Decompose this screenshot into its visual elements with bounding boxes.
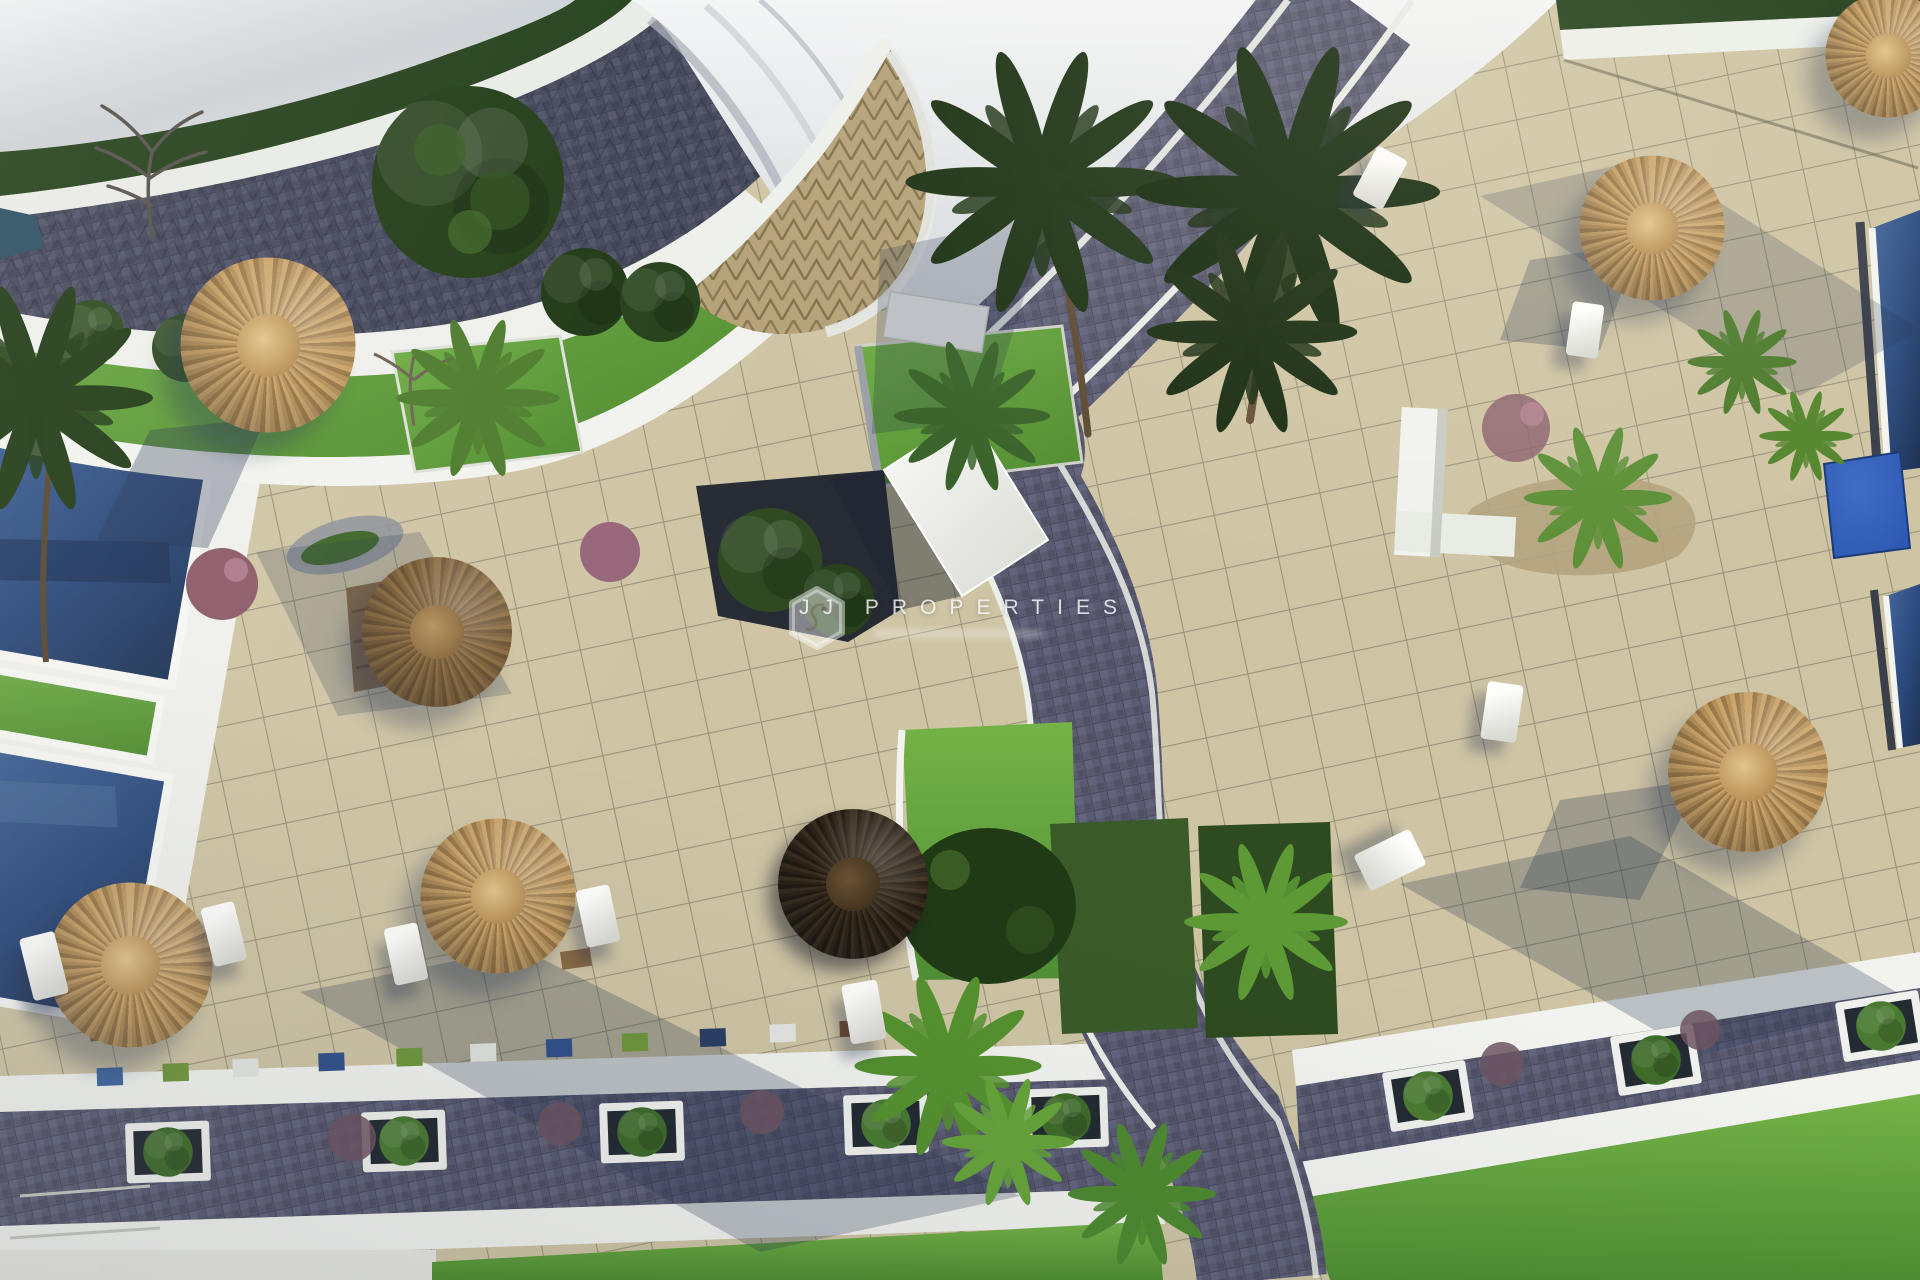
bush bbox=[620, 262, 700, 342]
parasol-hub bbox=[237, 314, 300, 377]
bush-highlight bbox=[414, 124, 466, 176]
aerial-resort-render: JJ PROPERTIES bbox=[0, 0, 1920, 1280]
bush-highlight bbox=[448, 210, 492, 254]
parasol-hub bbox=[410, 605, 464, 659]
straw-parasol bbox=[181, 258, 356, 433]
parasol-hub bbox=[1719, 743, 1777, 801]
blue-spa-cube bbox=[1824, 452, 1910, 558]
flower-highlight bbox=[224, 558, 248, 582]
straw-parasol bbox=[1580, 156, 1725, 301]
flowering-shrub bbox=[580, 522, 640, 582]
bush-highlight bbox=[930, 850, 970, 890]
straw-parasol bbox=[48, 883, 213, 1048]
parasol-hub bbox=[470, 868, 526, 924]
parasol-hub bbox=[826, 857, 880, 911]
parasol-hub bbox=[1626, 202, 1678, 254]
island-bush bbox=[900, 828, 1076, 984]
flower-highlight bbox=[1520, 402, 1544, 426]
flowering-shrub bbox=[1482, 394, 1550, 462]
bush-highlight bbox=[1006, 906, 1054, 954]
straw-parasol bbox=[1668, 692, 1828, 852]
straw-parasol bbox=[421, 819, 576, 974]
straw-parasol bbox=[362, 557, 512, 707]
flowering-shrub bbox=[186, 548, 258, 620]
straw-parasol-shaded bbox=[778, 809, 928, 959]
parasol-hub bbox=[1866, 33, 1911, 78]
bush bbox=[541, 248, 629, 336]
bush bbox=[802, 564, 874, 636]
white-walkway-corner bbox=[0, 1250, 436, 1280]
